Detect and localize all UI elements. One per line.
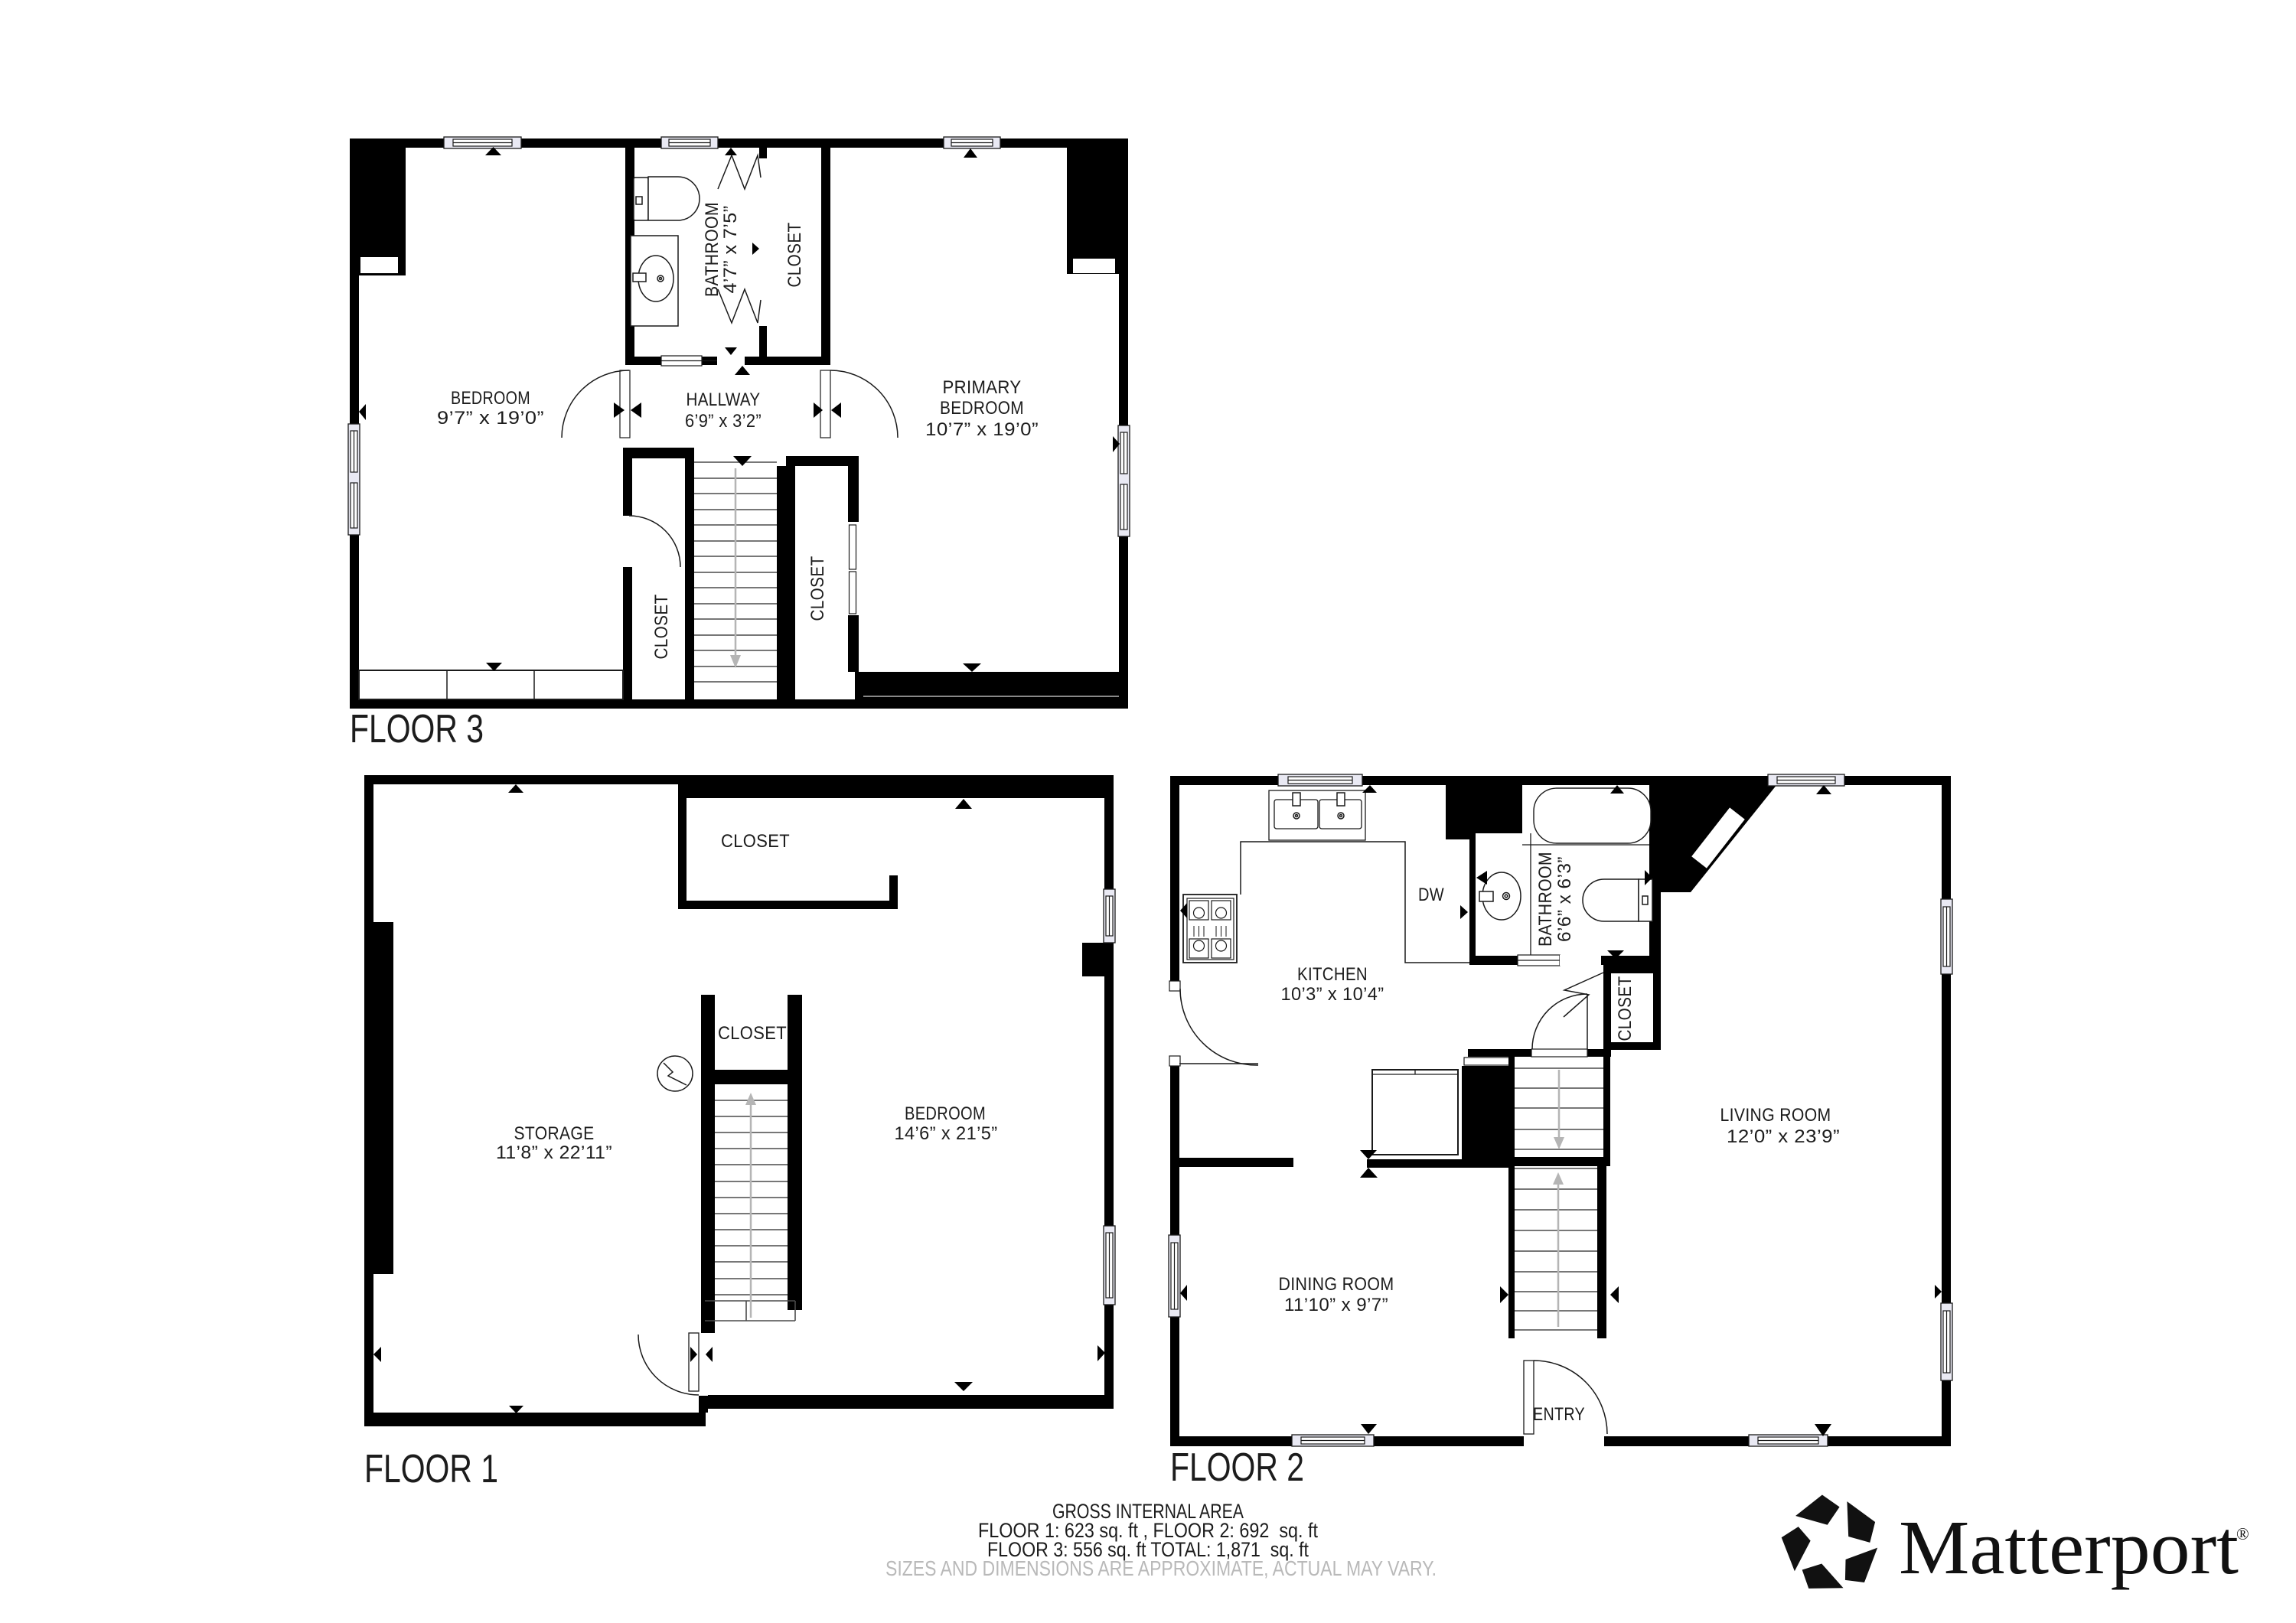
svg-text:ENTRY: ENTRY	[1533, 1404, 1585, 1425]
svg-text:SIZES AND DIMENSIONS ARE APPRO: SIZES AND DIMENSIONS ARE APPROXIMATE, AC…	[885, 1556, 1437, 1580]
svg-text:PRIMARY: PRIMARY	[943, 377, 1022, 398]
svg-text:DINING ROOM: DINING ROOM	[1279, 1274, 1394, 1295]
svg-text:BEDROOM: BEDROOM	[451, 388, 530, 409]
svg-text:12’0” x 23’9”: 12’0” x 23’9”	[1727, 1126, 1840, 1147]
svg-text:BATHROOM: BATHROOM	[1535, 852, 1556, 947]
svg-text:Matterport: Matterport	[1899, 1504, 2239, 1590]
svg-text:BEDROOM: BEDROOM	[905, 1103, 986, 1124]
svg-text:CLOSET: CLOSET	[807, 556, 828, 621]
svg-text:FLOOR 3: FLOOR 3	[350, 707, 484, 751]
svg-text:STORAGE: STORAGE	[514, 1123, 595, 1144]
svg-text:FLOOR 2: FLOOR 2	[1170, 1445, 1304, 1490]
svg-text:CLOSET: CLOSET	[718, 1023, 787, 1044]
svg-text:LIVING ROOM: LIVING ROOM	[1720, 1105, 1831, 1126]
svg-text:10’7” x 19’0”: 10’7” x 19’0”	[925, 419, 1039, 440]
svg-text:HALLWAY: HALLWAY	[687, 389, 761, 410]
svg-text:10’3” x 10’4”: 10’3” x 10’4”	[1281, 984, 1384, 1005]
svg-text:BEDROOM: BEDROOM	[940, 398, 1024, 419]
svg-text:14’6” x 21’5”: 14’6” x 21’5”	[895, 1123, 998, 1144]
svg-text:11’10” x 9’7”: 11’10” x 9’7”	[1284, 1295, 1388, 1315]
svg-text:CLOSET: CLOSET	[1615, 976, 1636, 1041]
svg-text:KITCHEN: KITCHEN	[1297, 964, 1368, 985]
svg-text:CLOSET: CLOSET	[721, 831, 790, 852]
svg-text:6’6” x 6’3”: 6’6” x 6’3”	[1554, 856, 1575, 942]
svg-text:BATHROOM: BATHROOM	[702, 202, 722, 297]
svg-text:11’8” x 22’11”: 11’8” x 22’11”	[496, 1142, 612, 1163]
svg-text:®: ®	[2236, 1524, 2249, 1543]
svg-text:DW: DW	[1418, 885, 1444, 905]
svg-text:4’7” x 7’5”: 4’7” x 7’5”	[720, 206, 741, 294]
svg-text:CLOSET: CLOSET	[784, 223, 805, 288]
svg-text:6’9” x 3’2”: 6’9” x 3’2”	[685, 411, 762, 432]
svg-text:9’7” x 19’0”: 9’7” x 19’0”	[437, 408, 544, 429]
svg-text:FLOOR 1: FLOOR 1	[364, 1447, 498, 1491]
svg-text:CLOSET: CLOSET	[651, 595, 672, 660]
